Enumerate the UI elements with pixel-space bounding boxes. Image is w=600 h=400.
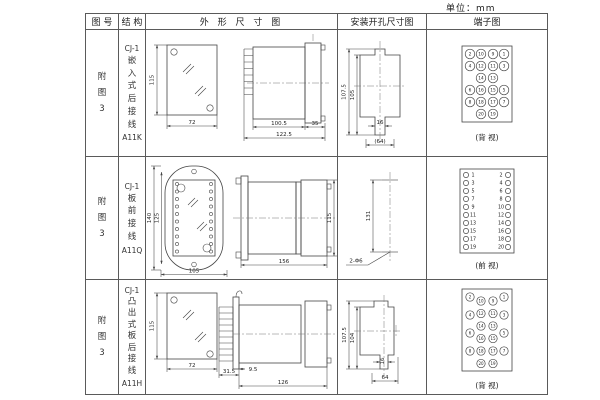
figure-no: 附图3 (96, 194, 108, 242)
table-row-a11h: 附图3 CJ-1 凸出式板后接线 A11H 115 72 (86, 280, 548, 395)
svg-text:16: 16 (478, 336, 484, 341)
dim-inner-height: 104 (350, 332, 356, 343)
svg-text:8: 8 (499, 197, 502, 203)
header-outline: 外 形 尺 寸 图 (146, 14, 338, 30)
header-structure: 结 构 (119, 14, 146, 30)
terminal-cell: 1234567891011121314151617181920 (前 视) (427, 157, 548, 280)
svg-text:13: 13 (490, 323, 496, 328)
install-cell: 107.5 105 16 (64) (338, 30, 427, 157)
dim-slot-width: 16 (377, 120, 384, 126)
svg-text:14: 14 (478, 76, 484, 82)
svg-text:11: 11 (470, 213, 476, 219)
svg-text:17: 17 (490, 348, 496, 353)
install-cell: 107.5 104 16 64 (338, 280, 427, 395)
figure-no: 附图3 (96, 69, 108, 117)
svg-text:19: 19 (490, 112, 496, 118)
terminal-diagram-a11q: 1234567891011121314151617181920 (427, 165, 547, 257)
dim-side-height: 115 (327, 212, 333, 223)
svg-text:4: 4 (499, 181, 502, 187)
svg-text:16: 16 (498, 229, 504, 235)
svg-text:7: 7 (503, 100, 506, 106)
svg-text:1: 1 (471, 173, 474, 179)
structure-model: CJ-1 (125, 286, 140, 295)
install-holes-label: 2-Φ6 (349, 259, 363, 265)
dim-outer-height: 107.5 (342, 83, 348, 99)
dim-hole-spacing: 131 (366, 211, 372, 222)
svg-text:14: 14 (478, 323, 484, 328)
outline-drawing-a11q: 140 125 105 156 (147, 158, 337, 278)
structure-cell: CJ-1 板前接线 A11Q (119, 157, 146, 280)
dim-outer-height: 107.5 (342, 327, 348, 343)
svg-text:6: 6 (499, 189, 502, 195)
svg-text:8: 8 (469, 100, 472, 106)
svg-text:5: 5 (503, 330, 506, 335)
svg-text:19: 19 (490, 361, 496, 366)
install-drawing-a11q: 131 2-Φ6 (338, 158, 426, 278)
svg-text:10: 10 (478, 298, 484, 303)
structure-code: A11K (122, 133, 142, 142)
terminal-cell: 2109141211314136161558181772019 (背 视) (427, 30, 548, 157)
outline-drawing-a11h: 115 72 31.5 9.5 (147, 281, 337, 393)
structure-code: A11H (122, 379, 142, 388)
svg-text:7: 7 (471, 197, 474, 203)
manual-page: { "unit_label": "单位：mm", "colors": {"lin… (0, 0, 600, 400)
terminal-caption: (背 视) (475, 132, 498, 143)
svg-text:10: 10 (478, 52, 484, 58)
svg-text:12: 12 (478, 311, 484, 316)
install-drawing-a11h: 107.5 104 16 64 (338, 283, 426, 391)
dim-hole-span: 64 (382, 375, 389, 381)
install-drawing-a11k: 107.5 105 16 (64) (338, 31, 426, 156)
dim-total-len: 126 (277, 380, 288, 386)
svg-text:9: 9 (471, 205, 474, 211)
svg-text:13: 13 (490, 76, 496, 82)
table-row-a11q: 附图3 CJ-1 板前接线 A11Q (86, 157, 548, 280)
svg-text:10: 10 (498, 205, 504, 211)
dim-fin-depth: 31.5 (222, 369, 235, 375)
svg-text:6: 6 (469, 330, 472, 335)
svg-text:18: 18 (498, 237, 504, 243)
dim-front-height: 115 (149, 74, 155, 85)
terminal-caption: (前 视) (475, 260, 498, 271)
dim-total-len: 122.5 (276, 132, 292, 138)
svg-text:13: 13 (470, 221, 476, 227)
svg-text:8: 8 (469, 348, 472, 353)
figure-no-cell: 附图3 (86, 280, 119, 395)
dim-flange-len: 35 (311, 121, 318, 127)
header-figure-no: 图 号 (86, 14, 119, 30)
svg-text:2: 2 (469, 52, 472, 58)
outline-cell: 140 125 105 156 (146, 157, 338, 280)
structure-desc: 板前接线 (127, 193, 138, 244)
dim-hole-span: (64) (374, 139, 385, 145)
svg-text:2: 2 (469, 294, 472, 299)
svg-text:1: 1 (503, 294, 506, 299)
svg-text:3: 3 (503, 312, 506, 317)
svg-text:18: 18 (478, 100, 484, 106)
svg-text:5: 5 (503, 88, 506, 94)
svg-text:4: 4 (469, 312, 472, 317)
dim-window-height: 125 (154, 212, 160, 223)
svg-text:15: 15 (490, 88, 496, 94)
terminal-diagram-a11k: 2109141211314136161558181772019 (427, 43, 547, 129)
structure-code: A11Q (122, 246, 143, 255)
dim-front-height: 140 (147, 212, 153, 223)
dim-panel-offset: 9.5 (248, 367, 257, 373)
install-cell: 131 2-Φ6 (338, 157, 427, 280)
header-row: 图 号 结 构 外 形 尺 寸 图 安装开孔尺寸图 端子图 (86, 14, 548, 30)
svg-text:12: 12 (498, 213, 504, 219)
svg-text:1: 1 (503, 52, 506, 58)
structure-model: CJ-1 (125, 44, 140, 53)
structure-desc: 凸出式板后接线 (127, 297, 138, 377)
svg-text:6: 6 (469, 88, 472, 94)
svg-text:18: 18 (478, 348, 484, 353)
dim-front-width: 72 (188, 363, 195, 369)
terminal-cell: 2110912114314136516158718172019 (背 视) (427, 280, 548, 395)
dim-slot-width: 16 (380, 357, 386, 364)
svg-text:7: 7 (503, 348, 506, 353)
figure-no-cell: 附图3 (86, 157, 119, 280)
svg-text:2: 2 (499, 173, 502, 179)
dim-front-width: 72 (188, 120, 195, 126)
dim-inner-height: 105 (350, 89, 356, 100)
svg-text:9: 9 (492, 52, 495, 58)
structure-cell: CJ-1 嵌入式后接线 A11K (119, 30, 146, 157)
table-row-a11k: 附图3 CJ-1 嵌入式后接线 A11K 115 72 (86, 30, 548, 157)
svg-text:9: 9 (492, 298, 495, 303)
svg-text:12: 12 (478, 64, 484, 70)
svg-text:4: 4 (469, 64, 472, 70)
structure-desc: 嵌入式后接线 (127, 55, 138, 132)
terminal-diagram-a11h: 2110912114314136516158718172019 (427, 283, 547, 377)
svg-text:17: 17 (470, 237, 476, 243)
figure-no-cell: 附图3 (86, 30, 119, 157)
outline-cell: 115 72 100.5 35 (146, 30, 338, 157)
svg-text:11: 11 (490, 311, 496, 316)
svg-text:3: 3 (503, 64, 506, 70)
header-install: 安装开孔尺寸图 (338, 14, 427, 30)
svg-text:14: 14 (498, 221, 504, 227)
svg-text:17: 17 (490, 100, 496, 106)
svg-text:3: 3 (471, 181, 474, 187)
svg-text:15: 15 (490, 336, 496, 341)
svg-text:11: 11 (490, 64, 496, 70)
svg-text:16: 16 (478, 88, 484, 94)
terminal-caption: (背 视) (475, 380, 498, 391)
outline-cell: 115 72 31.5 9.5 (146, 280, 338, 395)
svg-text:5: 5 (471, 189, 474, 195)
figure-no: 附图3 (96, 313, 108, 361)
svg-text:19: 19 (470, 245, 476, 251)
structure-model: CJ-1 (125, 182, 140, 191)
dim-front-width: 105 (188, 269, 199, 275)
dim-body-len: 100.5 (271, 121, 287, 127)
structure-cell: CJ-1 凸出式板后接线 A11H (119, 280, 146, 395)
svg-text:20: 20 (478, 112, 484, 118)
header-terminal: 端子图 (427, 14, 548, 30)
svg-text:20: 20 (498, 245, 504, 251)
svg-text:20: 20 (478, 361, 484, 366)
outline-drawing-a11k: 115 72 100.5 35 (147, 31, 337, 156)
spec-table: 图 号 结 构 外 形 尺 寸 图 安装开孔尺寸图 端子图 附图3 CJ-1 嵌… (85, 13, 548, 395)
dim-side-length: 156 (278, 259, 289, 265)
dim-front-height: 115 (149, 320, 155, 331)
svg-text:15: 15 (470, 229, 476, 235)
